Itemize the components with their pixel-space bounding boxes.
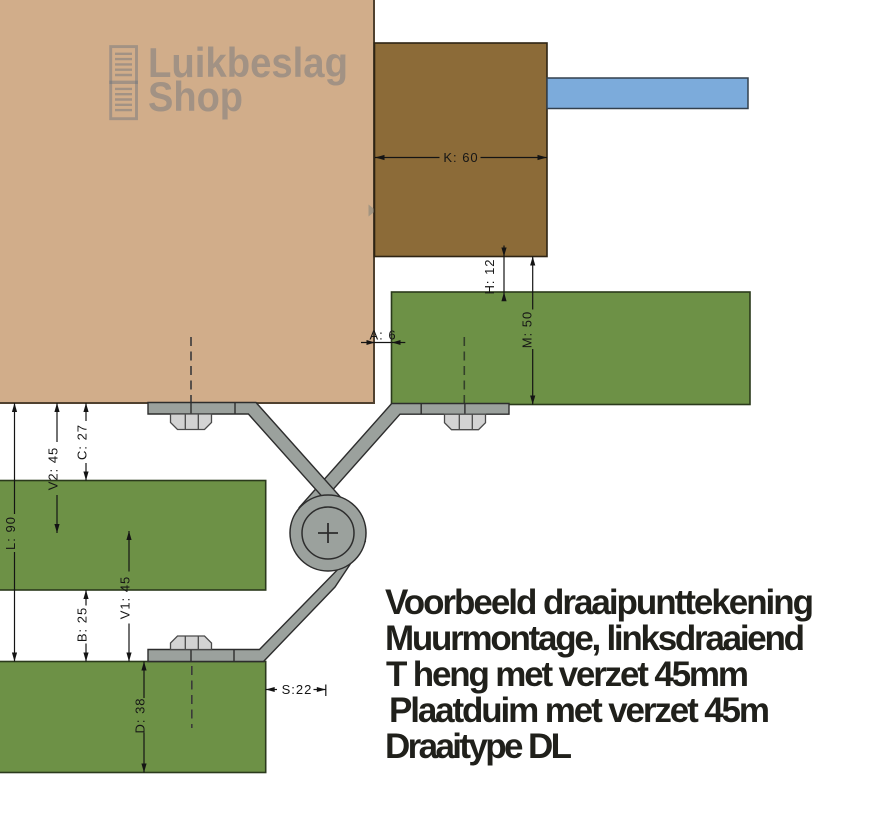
svg-text:T heng met verzet 45mm: T heng met verzet 45mm bbox=[386, 655, 749, 694]
svg-text:M: 50: M: 50 bbox=[520, 311, 535, 349]
svg-text:L: 90: L: 90 bbox=[3, 516, 18, 550]
svg-text:C: 27: C: 27 bbox=[74, 424, 89, 460]
svg-text:S:22: S:22 bbox=[282, 682, 313, 697]
svg-text:Plaatduim met verzet 45m: Plaatduim met verzet 45m bbox=[389, 691, 770, 730]
svg-text:V1: 45: V1: 45 bbox=[117, 576, 132, 620]
svg-text:Muurmontage, linksdraaiend: Muurmontage, linksdraaiend bbox=[385, 619, 805, 658]
svg-text:Voorbeeld draaipunttekening: Voorbeeld draaipunttekening bbox=[385, 583, 814, 622]
svg-text:Shop: Shop bbox=[148, 73, 243, 120]
svg-text:K: 60: K: 60 bbox=[443, 150, 478, 165]
svg-text:V2: 45: V2: 45 bbox=[45, 447, 60, 491]
svg-text:H: 12: H: 12 bbox=[482, 258, 497, 294]
svg-text:D: 38: D: 38 bbox=[132, 697, 147, 733]
svg-text:Draaitype DL: Draaitype DL bbox=[385, 727, 572, 766]
svg-text:B: 25: B: 25 bbox=[74, 607, 89, 642]
svg-text:A: 6: A: 6 bbox=[369, 328, 396, 343]
